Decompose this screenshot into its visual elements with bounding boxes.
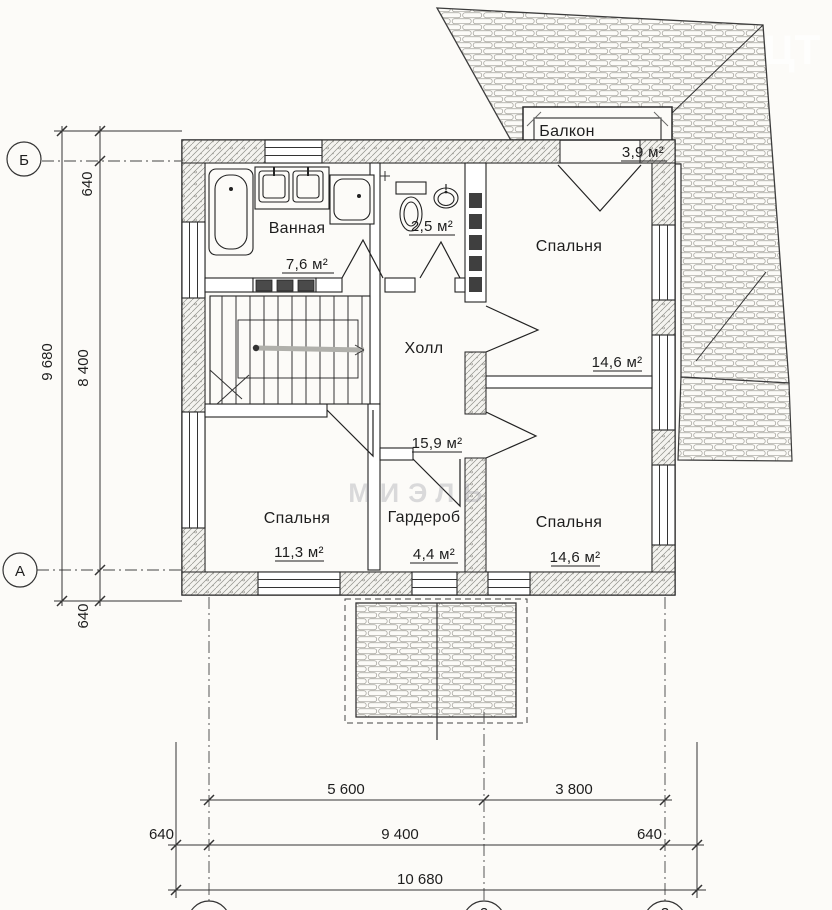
window [265,140,322,163]
room-area-bedroom-right: 14,6 м² [550,549,601,566]
sink [259,167,289,202]
room-label-bedroom-right: Спальня [536,514,602,531]
window [412,572,457,595]
dim-640-bottom-right: 640 [637,826,662,843]
watermark-top-right: ЦТ [764,26,821,73]
window [652,335,675,430]
axis-label-3: 3 [661,905,669,910]
radiator [256,280,314,291]
dim-5600: 5 600 [327,781,365,798]
dim-8400: 8 400 [75,349,92,387]
watermark-center: МИЭЛЬ [348,478,491,508]
room-area-wc: 2,5 м² [411,218,453,235]
dim-9680: 9 680 [39,343,56,381]
window [182,412,205,528]
porch-roof [345,599,527,740]
room-label-balcony: Балкон [539,123,594,140]
window [488,572,530,595]
window [182,222,205,298]
dim-10680: 10 680 [397,871,443,888]
window [652,225,675,300]
staircase [210,296,370,404]
dim-640-left-bottom: 640 [75,603,92,628]
room-area-bathroom: 7,6 м² [286,256,328,273]
dim-3800: 3 800 [555,781,593,798]
stair-direction-line [256,348,364,350]
dim-640-bottom-left: 640 [149,826,174,843]
axis-label-a: А [15,563,25,580]
window [652,465,675,545]
bathtub [209,169,253,255]
room-area-wardrobe: 4,4 м² [413,546,455,563]
room-label-bedroom-left: Спальня [264,510,330,527]
room-area-bedroom-left: 11,3 м² [274,544,324,561]
dim-9400: 9 400 [381,826,419,843]
floor-plan-drawing: Ванная 7,6 м² 2,5 м² Холл 15,9 м² Спальн… [0,0,832,910]
room-label-bedroom-top: Спальня [536,238,602,255]
axis-label-2: 2 [480,905,488,910]
room-area-hall: 15,9 м² [412,435,463,452]
sink [293,167,323,202]
room-area-bedroom-top: 14,6 м² [592,354,643,371]
dim-640-top-left: 640 [79,171,96,196]
room-label-hall: Холл [405,340,444,357]
window [258,572,340,595]
axis-label-b: Б [19,152,29,169]
room-label-bathroom: Ванная [269,220,326,237]
room-label-wardrobe: Гардероб [388,509,461,526]
stair-arrow-start-dot [253,345,259,351]
shower-tray [330,175,374,224]
floor-plan-page: Ванная 7,6 м² 2,5 м² Холл 15,9 м² Спальн… [0,0,832,910]
room-area-balcony: 3,9 м² [622,144,664,161]
axis-circle-1 [188,901,230,910]
